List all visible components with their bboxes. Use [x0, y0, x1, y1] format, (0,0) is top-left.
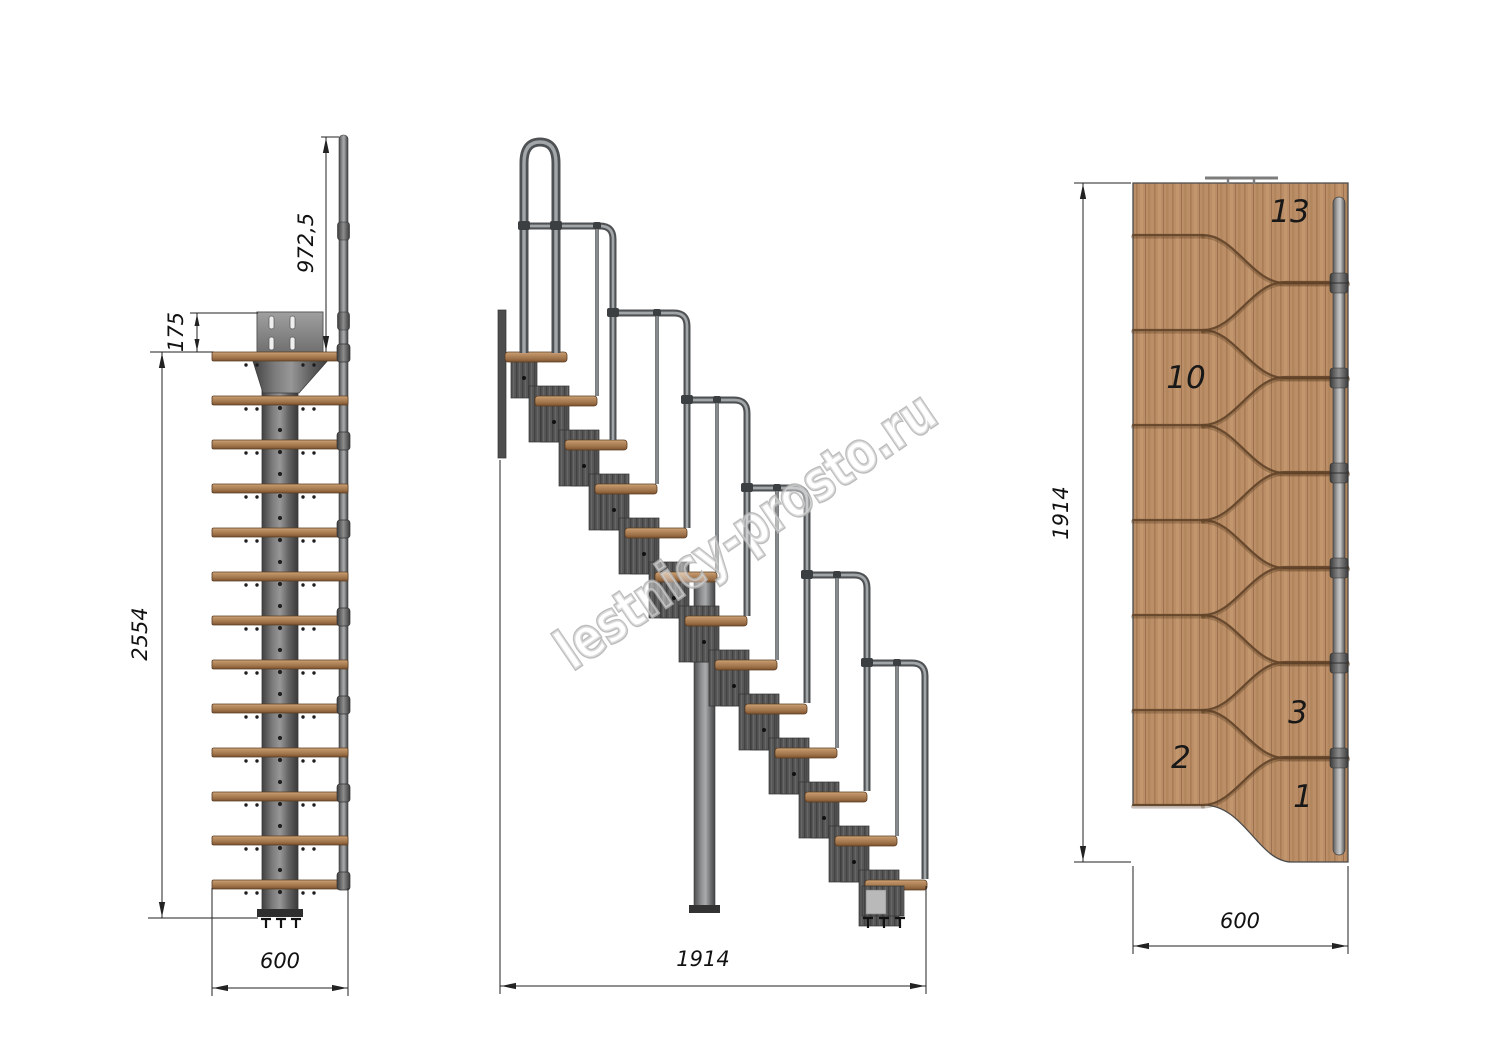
- rail-connector-knob: [337, 784, 350, 802]
- front-dimensions: 972,51752554600: [128, 137, 348, 996]
- dim-bracket-offset: 175: [164, 312, 188, 352]
- rail-clamp: [801, 570, 813, 579]
- rail-connector-knob: [337, 608, 350, 626]
- side-tread: [805, 792, 867, 802]
- baluster-clamp: [593, 222, 601, 229]
- plan-view: 13103211914600: [1049, 178, 1348, 954]
- tread-number: 3: [1288, 695, 1308, 731]
- baluster-clamp: [833, 571, 841, 578]
- rail-connector-knob: [337, 344, 350, 362]
- front-tread: [212, 484, 348, 493]
- side-tread: [535, 396, 597, 406]
- baluster-clamp: [893, 659, 901, 666]
- bracket-slot: [269, 337, 274, 350]
- side-tread: [745, 704, 807, 714]
- front-tread: [212, 836, 348, 845]
- bracket-slot: [290, 316, 295, 329]
- rail-sleeve: [338, 312, 350, 330]
- base-foot: [276, 919, 286, 928]
- front-tread: [212, 748, 348, 757]
- front-tread: [212, 352, 348, 361]
- front-tread: [212, 528, 348, 537]
- dim-side-run: 1914: [676, 947, 729, 971]
- front-tread: [212, 440, 348, 449]
- front-column: [262, 354, 298, 912]
- handrail-loop: [524, 142, 556, 353]
- rail-sleeve: [338, 222, 350, 240]
- front-tread: [212, 396, 348, 405]
- tread-number: 10: [1166, 360, 1205, 396]
- dim-total-height: 2554: [128, 607, 152, 660]
- baluster-clamp: [713, 396, 721, 403]
- tread-number: 1: [1293, 779, 1313, 815]
- side-tread: [565, 440, 627, 450]
- rail-connector-knob: [337, 872, 350, 890]
- base-foot: [291, 919, 301, 928]
- rail-clamp: [518, 221, 530, 230]
- side-tread: [595, 484, 657, 494]
- rail-connector-knob: [337, 696, 350, 714]
- rail-connector-knob: [337, 432, 350, 450]
- tread-number: 2: [1171, 740, 1191, 776]
- rail-connector-knob: [337, 520, 350, 538]
- front-view: 972,51752554600: [128, 135, 350, 996]
- front-tread: [212, 792, 348, 801]
- rail-clamp: [861, 658, 873, 667]
- dim-plan-run: 1914: [1049, 486, 1073, 539]
- front-tread: [212, 616, 348, 625]
- base-foot: [261, 919, 271, 928]
- side-tread: [715, 660, 777, 670]
- front-tread: [212, 660, 348, 669]
- rail-clamp: [681, 395, 693, 404]
- dim-plan-width: 600: [1220, 909, 1260, 933]
- dim-front-width: 600: [260, 949, 300, 973]
- staircase-drawing: 972,51752554600191413103211914600lestnic…: [0, 0, 1500, 1061]
- wall-plate: [498, 310, 506, 458]
- column-base-plate: [257, 909, 303, 917]
- rail-clamp: [550, 221, 562, 230]
- side-tread: [685, 616, 747, 626]
- dim-handrail-height: 972,5: [294, 213, 318, 273]
- column-flare: [252, 358, 330, 393]
- support-column-base: [689, 905, 720, 913]
- rail-clamp: [607, 308, 619, 317]
- tread-number: 13: [1270, 194, 1309, 230]
- side-tread: [625, 528, 687, 538]
- front-tread: [212, 572, 348, 581]
- technical-drawing: 972,51752554600191413103211914600lestnic…: [0, 0, 1500, 1061]
- front-tread: [212, 704, 348, 713]
- bracket-slot: [269, 316, 274, 329]
- side-tread: [775, 748, 837, 758]
- side-tread: [835, 836, 897, 846]
- front-tread: [212, 880, 348, 889]
- side-tread: [505, 352, 567, 362]
- front-handrail-post: [339, 135, 348, 884]
- baluster-clamp: [653, 309, 661, 316]
- bracket-slot: [290, 337, 295, 350]
